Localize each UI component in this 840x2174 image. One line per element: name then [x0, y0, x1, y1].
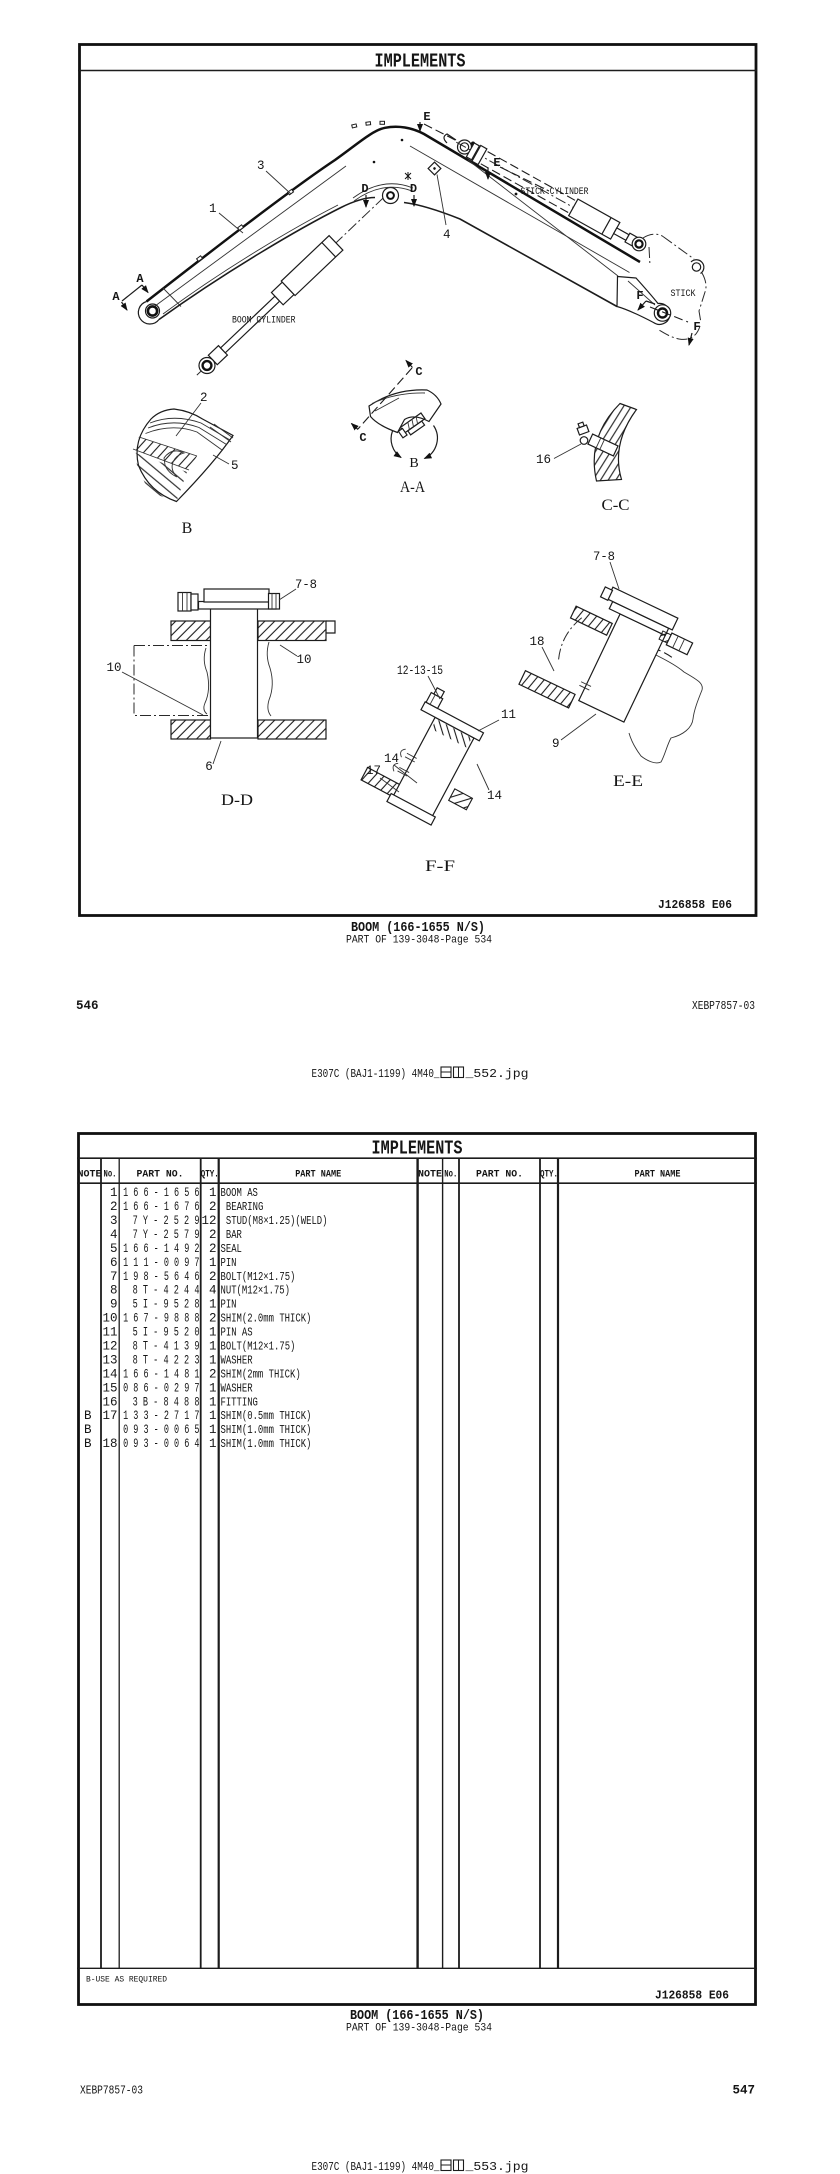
svg-text:17: 17: [366, 764, 381, 778]
svg-text:4: 4: [443, 228, 451, 242]
svg-text:B: B: [182, 520, 193, 537]
svg-text:17: 17: [102, 1409, 117, 1423]
svg-text:PIN AS: PIN AS: [221, 1326, 253, 1340]
svg-text:1: 1: [209, 202, 217, 216]
svg-text:9: 9: [110, 1298, 118, 1312]
svg-text:546: 546: [76, 999, 99, 1013]
svg-text:15: 15: [102, 1381, 117, 1395]
svg-text:WASHER: WASHER: [221, 1381, 253, 1395]
svg-text:C: C: [359, 431, 366, 445]
svg-text:NOTE: NOTE: [418, 1169, 442, 1181]
svg-text:8 T - 4 1 3 9: 8 T - 4 1 3 9: [133, 1340, 200, 1354]
svg-text:1 3 3 - 2 7 1 7: 1 3 3 - 2 7 1 7: [123, 1409, 199, 1423]
svg-text:WASHER: WASHER: [221, 1353, 253, 1367]
svg-text:7-8: 7-8: [593, 550, 615, 564]
svg-text:4: 4: [209, 1284, 217, 1298]
svg-text:A-A: A-A: [400, 479, 425, 496]
svg-text:BOOM CYLINDER: BOOM CYLINDER: [232, 315, 296, 327]
svg-text:14: 14: [384, 752, 399, 766]
svg-text:9: 9: [552, 737, 560, 751]
svg-text:J126858 E06: J126858 E06: [658, 898, 732, 912]
svg-text:PART OF 139-3048-Page 534: PART OF 139-3048-Page 534: [346, 2023, 492, 2035]
svg-text:D-D: D-D: [221, 792, 253, 809]
svg-text:D: D: [410, 182, 417, 196]
svg-text:16: 16: [536, 453, 551, 467]
svg-text:1: 1: [209, 1326, 217, 1340]
svg-text:7 Y - 2 5 7 9: 7 Y - 2 5 7 9: [133, 1228, 200, 1242]
svg-text:10: 10: [106, 661, 121, 675]
svg-text:1 6 6 - 1 4 8 1: 1 6 6 - 1 4 8 1: [123, 1367, 199, 1381]
svg-text:1: 1: [110, 1186, 118, 1200]
svg-text:1: 1: [209, 1437, 217, 1451]
svg-text:A: A: [136, 272, 144, 286]
svg-text:STUD(M8×1.25)(WELD): STUD(M8×1.25)(WELD): [226, 1214, 328, 1228]
svg-text:NUT(M12×1.75): NUT(M12×1.75): [221, 1284, 291, 1298]
svg-text:1 9 8 - 5 6 4 6: 1 9 8 - 5 6 4 6: [123, 1270, 199, 1284]
svg-text:7-8: 7-8: [295, 578, 317, 592]
svg-text:8 T - 4 2 4 4: 8 T - 4 2 4 4: [133, 1284, 200, 1298]
svg-text:BAR: BAR: [226, 1228, 242, 1242]
svg-text:2: 2: [209, 1228, 217, 1242]
svg-text:SHIM(2mm THICK): SHIM(2mm THICK): [221, 1367, 301, 1381]
svg-text:14: 14: [487, 789, 502, 803]
svg-text:No.: No.: [444, 1169, 457, 1181]
svg-text:F: F: [636, 289, 643, 303]
svg-text:PART NO.: PART NO.: [137, 1169, 184, 1181]
svg-text:5 I - 9 5 2 0: 5 I - 9 5 2 0: [133, 1326, 200, 1340]
svg-text:16: 16: [102, 1395, 117, 1409]
svg-text:2: 2: [209, 1200, 217, 1214]
svg-text:1 1 1 - 0 0 9 7: 1 1 1 - 0 0 9 7: [123, 1256, 199, 1270]
svg-text:STICK: STICK: [671, 288, 697, 300]
svg-text:F-F: F-F: [425, 858, 455, 875]
svg-text:C-C: C-C: [602, 497, 630, 514]
svg-text:B: B: [409, 456, 418, 471]
svg-text:IMPLEMENTS: IMPLEMENTS: [375, 51, 466, 73]
svg-text:1: 1: [209, 1340, 217, 1354]
svg-text:3: 3: [257, 159, 265, 173]
svg-text:B: B: [84, 1437, 92, 1451]
svg-text:NOTE: NOTE: [78, 1169, 102, 1181]
svg-text:10: 10: [102, 1312, 117, 1326]
svg-text:SHIM(0.5mm THICK): SHIM(0.5mm THICK): [221, 1409, 312, 1423]
svg-text:1 6 7 - 9 8 8 8: 1 6 7 - 9 8 8 8: [123, 1312, 199, 1326]
svg-text:10: 10: [296, 653, 311, 667]
svg-text:C: C: [415, 365, 422, 379]
svg-text:PIN: PIN: [221, 1256, 237, 1270]
svg-text:5 I - 9 5 2 8: 5 I - 9 5 2 8: [133, 1298, 200, 1312]
svg-text:1: 1: [209, 1423, 217, 1437]
svg-text:7 Y - 2 5 2 9: 7 Y - 2 5 2 9: [133, 1214, 200, 1228]
svg-text:1 6 6 - 1 6 7 6: 1 6 6 - 1 6 7 6: [123, 1200, 199, 1214]
svg-text:1: 1: [209, 1298, 217, 1312]
svg-text:PART OF 139-3048-Page 534: PART OF 139-3048-Page 534: [346, 935, 492, 947]
svg-text:1: 1: [209, 1186, 217, 1200]
svg-text:F: F: [693, 320, 700, 334]
svg-text:8: 8: [110, 1284, 118, 1298]
svg-text:2: 2: [200, 391, 208, 405]
svg-text:12-13-15: 12-13-15: [397, 664, 443, 678]
svg-text:1: 1: [209, 1395, 217, 1409]
svg-text:E307C (BAJ1-1199) 4M40_: E307C (BAJ1-1199) 4M40_: [312, 1067, 441, 1081]
svg-text:0 9 3 - 0 0 6 4: 0 9 3 - 0 0 6 4: [123, 1437, 199, 1451]
svg-text:PART NO.: PART NO.: [476, 1169, 523, 1181]
svg-text:BOOM AS: BOOM AS: [221, 1186, 258, 1200]
svg-text:547: 547: [732, 2084, 755, 2098]
svg-text:SHIM(2.0mm THICK): SHIM(2.0mm THICK): [221, 1312, 312, 1326]
svg-text:5: 5: [110, 1242, 118, 1256]
svg-text:A: A: [112, 290, 120, 304]
svg-text:2: 2: [209, 1270, 217, 1284]
svg-text:6: 6: [205, 760, 213, 774]
svg-text:1: 1: [209, 1381, 217, 1395]
svg-text:1: 1: [209, 1409, 217, 1423]
svg-text:1 6 6 - 1 6 5 6: 1 6 6 - 1 6 5 6: [123, 1186, 199, 1200]
svg-text:1: 1: [209, 1353, 217, 1367]
svg-text:E-E: E-E: [613, 773, 643, 790]
svg-text:SHIM(1.0mm THICK): SHIM(1.0mm THICK): [221, 1437, 312, 1451]
svg-text:No.: No.: [104, 1169, 117, 1181]
svg-text:BEARING: BEARING: [226, 1200, 263, 1214]
svg-text:SHIM(1.0mm THICK): SHIM(1.0mm THICK): [221, 1423, 312, 1437]
svg-text:5: 5: [231, 459, 239, 473]
svg-text:1 6 6 - 1 4 9 2: 1 6 6 - 1 4 9 2: [123, 1242, 199, 1256]
svg-text:2: 2: [209, 1312, 217, 1326]
svg-text:B: B: [84, 1409, 92, 1423]
svg-text:E307C (BAJ1-1199) 4M40_: E307C (BAJ1-1199) 4M40_: [312, 2160, 441, 2174]
svg-text:PART NAME: PART NAME: [295, 1169, 341, 1181]
svg-text:PIN: PIN: [221, 1298, 237, 1312]
svg-text:3 B - 8 4 8 8: 3 B - 8 4 8 8: [133, 1395, 200, 1409]
svg-text:B-USE AS REQUIRED: B-USE AS REQUIRED: [86, 1975, 167, 1985]
svg-text:7: 7: [110, 1270, 118, 1284]
svg-text:SEAL: SEAL: [221, 1242, 242, 1256]
svg-text:12: 12: [201, 1214, 216, 1228]
svg-text:QTY.: QTY.: [201, 1169, 219, 1181]
svg-text:J126858 E06: J126858 E06: [655, 1989, 729, 2003]
svg-text:2: 2: [110, 1200, 118, 1214]
svg-text:_552.jpg: _552.jpg: [464, 1067, 528, 1081]
svg-text:2: 2: [209, 1367, 217, 1381]
svg-text:BOLT(M12×1.75): BOLT(M12×1.75): [221, 1270, 296, 1284]
svg-text:6: 6: [110, 1256, 118, 1270]
svg-text:3: 3: [110, 1214, 118, 1228]
svg-text:E: E: [423, 110, 430, 124]
svg-text:B: B: [84, 1423, 92, 1437]
svg-text:11: 11: [501, 708, 516, 722]
svg-text:IMPLEMENTS: IMPLEMENTS: [372, 1138, 463, 1160]
svg-text:STICK CYLINDER: STICK CYLINDER: [521, 186, 590, 198]
svg-text:0 9 3 - 0 0 6 5: 0 9 3 - 0 0 6 5: [123, 1423, 199, 1437]
svg-text:QTY.: QTY.: [540, 1169, 558, 1181]
svg-text:13: 13: [102, 1353, 117, 1367]
svg-text:XEBP7857-03: XEBP7857-03: [80, 2085, 143, 2098]
svg-text:18: 18: [102, 1437, 117, 1451]
svg-text:4: 4: [110, 1228, 118, 1242]
svg-text:14: 14: [102, 1367, 117, 1381]
svg-text:PART NAME: PART NAME: [635, 1169, 681, 1181]
svg-text:2: 2: [209, 1242, 217, 1256]
svg-text:XEBP7857-03: XEBP7857-03: [692, 1000, 755, 1013]
svg-text:FITTING: FITTING: [221, 1395, 258, 1409]
svg-text:8 T - 4 2 2 3: 8 T - 4 2 2 3: [133, 1353, 200, 1367]
svg-text:D: D: [361, 182, 368, 196]
svg-text:BOLT(M12×1.75): BOLT(M12×1.75): [221, 1340, 296, 1354]
svg-text:11: 11: [102, 1326, 117, 1340]
svg-text:E: E: [493, 156, 500, 170]
svg-text:1: 1: [209, 1256, 217, 1270]
svg-text:_553.jpg: _553.jpg: [464, 2160, 528, 2174]
svg-text:12: 12: [102, 1340, 117, 1354]
svg-text:0 8 6 - 0 2 9 7: 0 8 6 - 0 2 9 7: [123, 1381, 199, 1395]
